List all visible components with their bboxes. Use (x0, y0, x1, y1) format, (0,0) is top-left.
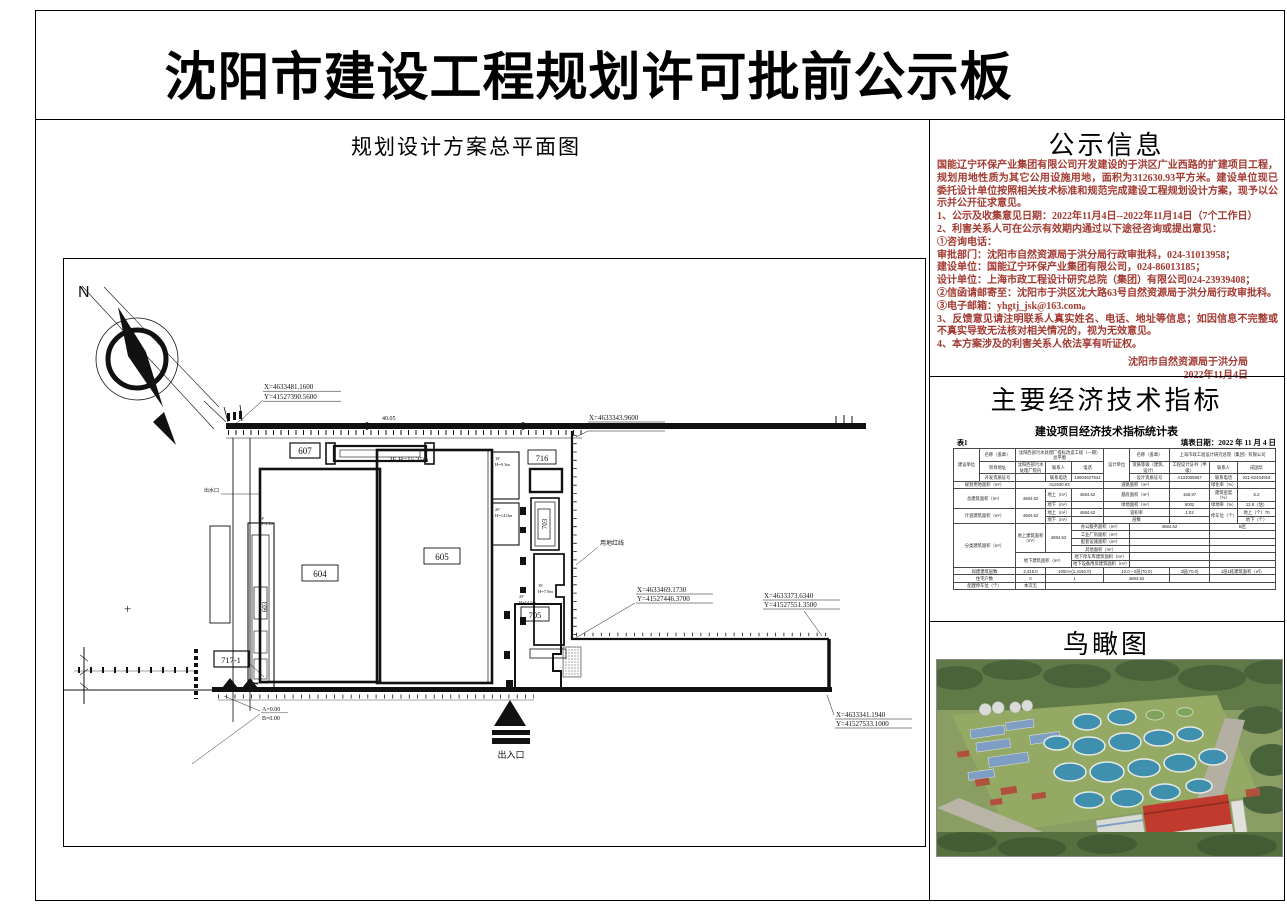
indicator-cell (1210, 531, 1276, 538)
notice-paragraph: 国能辽宁环保产业集团有限公司开发建设的于洪区广业西路的扩建项目工程，规划用地性质… (937, 160, 1278, 211)
indicator-cell: 道路面积（m²） (1104, 481, 1170, 488)
north-road (226, 415, 866, 438)
indicator-cell: 设计单位 (1104, 449, 1130, 482)
notice-paragraph: 2、利害关系人可在公示有效期内通过以下途径咨询或提出意见： (937, 224, 1278, 237)
indicator-cell: 地上建筑面积（m²） (1016, 523, 1046, 552)
entrance-label: 出入口 (497, 749, 524, 760)
svg-text:H=4.5m: H=4.5m (260, 521, 274, 526)
indicator-cell: 配建停车位（个） (954, 582, 1016, 589)
indicator-cell: 工程设计证书（甲级） (1170, 461, 1210, 474)
svg-text:Y=41527551.3500: Y=41527551.3500 (764, 601, 817, 609)
building-label-717-1: 717-1 (221, 655, 241, 665)
indicator-cell: 配套设施面积（m²） (1072, 538, 1130, 545)
site-plan-drawing: N X=4633481.1600 Y=41527390.5600 (64, 259, 925, 846)
indicator-cell: 拟建建筑层数 (954, 568, 1016, 575)
indicator-cell: 联系电话 (1210, 474, 1238, 481)
notice-board-sheet: 沈阳市建设工程规划许可批前公示板 规划设计方案总平面图 N (35, 10, 1285, 901)
indicator-cell (1210, 560, 1276, 567)
svg-text:H=9.3m: H=9.3m (495, 462, 510, 467)
section-divider-1 (929, 376, 1284, 377)
indicator-cell: 100m×(1,4150.0) (1046, 568, 1104, 575)
indicator-cell: 停车位（个） (1210, 509, 1238, 524)
svg-text:A=0.00: A=0.00 (262, 707, 280, 713)
entrance-marker: 出入口 (492, 700, 530, 760)
west-road (204, 401, 258, 722)
svg-text:出水口: 出水口 (204, 487, 219, 494)
indicator-cell: 0 (1016, 575, 1046, 582)
indicator-cell (1170, 481, 1210, 488)
notice-body: 国能辽宁环保产业集团有限公司开发建设的于洪区广业西路的扩建项目工程，规划用地性质… (937, 160, 1278, 383)
aerial-rendering (936, 659, 1283, 857)
indicator-cell: 312630.93 (1016, 481, 1104, 488)
east-boundary (572, 431, 829, 692)
notice-paragraph: 建设单位：国能辽宁环保产业集团有限公司，024-86013185； (937, 262, 1278, 275)
indicators-heading: 主要经济技术指标 (929, 380, 1284, 417)
site-plan-panel: N X=4633481.1600 Y=41527390.5600 (63, 258, 926, 847)
notice-paragraph: 3、反馈意见请注明联系人真实姓名、电话、地址等信息；如因信息不完整或不真实导致无… (937, 314, 1278, 340)
indicator-cell: B区 (1210, 523, 1276, 530)
indicator-cell: 联系人 (1210, 461, 1238, 474)
building-703: 703 1F H=7.9m (520, 498, 566, 658)
indicator-cell: 沈阳西部污水处理厂提标改造工程（一期）总平图 (1016, 449, 1104, 462)
svg-text:B=0.00: B=0.00 (262, 716, 280, 722)
indicator-cell: 156.97 (1170, 489, 1210, 502)
indicator-cell: 名称（盖章） (980, 449, 1016, 462)
svg-text:Y=41527390.5600: Y=41527390.5600 (264, 393, 317, 401)
indicator-cell: 层数 (1104, 516, 1170, 523)
building-705: 2F H=14.6m 705 (504, 594, 581, 690)
building-label-605: 605 (435, 552, 449, 562)
svg-text:Y=41527446.3700: Y=41527446.3700 (637, 595, 690, 603)
indicator-cell: 13604927544 (1072, 474, 1104, 481)
building-605: 605 3F H=15.35m (377, 450, 492, 683)
notice-paragraph: ①咨询电话： (937, 237, 1278, 250)
building-label-703: 703 (541, 518, 549, 529)
building-label-705: 705 (529, 610, 542, 620)
indicator-cell: 沈阳西部污水处理厂院内 (1016, 461, 1046, 474)
indicator-cell: 4684.62 (1046, 523, 1072, 552)
north-compass: N (78, 284, 219, 445)
svg-text:Y=41527526.5200: Y=41527526.5200 (589, 423, 642, 431)
indicator-cell (1210, 553, 1276, 560)
indicator-cell (1170, 575, 1210, 582)
indicator-cell: 项目地址 (980, 461, 1016, 474)
svg-text:X=4633469.1730: X=4633469.1730 (637, 586, 687, 594)
svg-text:2F: 2F (519, 594, 524, 599)
indicator-cell (1130, 538, 1210, 545)
svg-text:1F: 1F (495, 456, 500, 461)
svg-text:X=4633343.9600: X=4633343.9600 (589, 414, 639, 422)
title-divider (36, 119, 1284, 120)
building-604: 604 (260, 469, 380, 682)
indicator-table: 建设单位名称（盖章）沈阳西部污水处理厂提标改造工程（一期）总平图设计单位名称（盖… (953, 448, 1276, 590)
indicator-cell (1130, 553, 1210, 560)
coord-label-3: X=4633469.1730 Y=41527446.3700 (574, 586, 713, 639)
notice-signature: 沈阳市自然资源局于洪分局2022年11月4日 (937, 357, 1278, 383)
plan-section-title: 规划设计方案总平面图 (336, 131, 596, 161)
indicator-cell: 4684.62 (1072, 509, 1104, 516)
indicator-cell: 地上（个）70 (1238, 509, 1276, 516)
indicator-cell: 建筑密度（%） (1210, 489, 1238, 502)
indicator-cell: 4684.62 (1016, 509, 1046, 524)
outfall-note: 出水口 (204, 487, 260, 494)
indicator-cell (1210, 575, 1276, 582)
north-label: N (78, 284, 90, 301)
indicator-cell: 联系电话 (1046, 474, 1072, 481)
indicator-cell: 绿地率（%） (1210, 501, 1238, 508)
building-label-607: 607 (298, 446, 312, 456)
indicator-cell: 本次无 (1016, 582, 1046, 589)
indicator-cell: 名称（盖章） (1130, 449, 1170, 462)
indicator-cell: 地上（m²） (1046, 489, 1072, 502)
indicator-cell: 开发资质证号 (980, 474, 1016, 481)
building-label-603: 603 (261, 601, 269, 612)
indicator-cell: 成国华 (1238, 461, 1276, 474)
indicator-cell: 10.0－2层(70.0) (1104, 568, 1170, 575)
notice-heading: 公示信息 (929, 125, 1284, 162)
svg-text:1F: 1F (538, 583, 543, 588)
svg-text:X=4633341.1940: X=4633341.1940 (836, 711, 886, 719)
indicator-cell (1016, 474, 1046, 481)
indicator-cell: 021-62404918 (1238, 474, 1276, 481)
indicator-cell: 上海市政工程设计研究总院（集团）有限公司 (1170, 449, 1276, 462)
svg-text:X=4633373.6340: X=4633373.6340 (764, 592, 814, 600)
height-note-605: 3F H=15.35m (389, 456, 429, 464)
indicator-cell: 4684.62 (1016, 489, 1046, 509)
notice-paragraph: ③电子邮箱：yhgtj_jsk@163.com。 (937, 301, 1278, 314)
indicator-table-date: 填表日期：2022 年 11 月 4 日 (1091, 437, 1276, 448)
indicator-cell: 12.8（估） (1238, 501, 1276, 508)
building-label-716: 716 (536, 453, 549, 463)
indicator-cell: 电话 (1072, 461, 1104, 474)
coord-label-1: X=4633481.1600 Y=41527390.5600 (234, 383, 341, 425)
svg-text:用地红线: 用地红线 (600, 539, 624, 547)
indicator-cell (1130, 531, 1210, 538)
notice-paragraph: 4、本方案涉及的利害关系人依法享有听证权。 (937, 339, 1278, 352)
indicator-cell (1072, 516, 1104, 523)
indicator-cell: 联系人 (1046, 461, 1072, 474)
indicator-cell: 工业厂房面积（m²） (1072, 531, 1130, 538)
indicator-cell (1238, 481, 1276, 488)
indicator-cell (1046, 582, 1276, 589)
indicator-cell: 地下建筑面积（m²） (1016, 553, 1072, 568)
indicator-cell: 4684.62 (1072, 489, 1104, 502)
svg-text:H=14.0m: H=14.0m (495, 513, 513, 518)
page-title: 沈阳市建设工程规划许可批前公示板 (36, 35, 1141, 110)
svg-text:Y=41527533.1000: Y=41527533.1000 (836, 720, 889, 728)
indicator-cell: A131005957 (1170, 474, 1210, 481)
indicator-cell: 3层(70.0) (1170, 568, 1210, 575)
indicator-cell (1170, 516, 1210, 523)
indicator-cell (1210, 538, 1276, 545)
indicator-cell: 6002 (1170, 501, 1210, 508)
building-label-604: 604 (313, 569, 327, 579)
indicator-cell: 建设单位 (954, 449, 980, 482)
indicator-cell (1072, 501, 1104, 508)
indicator-table-number: 表1 (957, 438, 968, 448)
indicator-cell: 4684.62 (1130, 523, 1210, 530)
indicator-cell: 分类建筑面积（m²） (954, 523, 1016, 567)
indicator-cell: 地下（m²） (1046, 516, 1072, 523)
indicator-cell: 地下（个） (1238, 516, 1276, 523)
notice-paragraph: 审批部门：沈阳市自然资源局于洪分局行政审批科，024-31013958； (937, 250, 1278, 263)
indicator-cell: 地下停车库建筑面积（m²） (1072, 553, 1130, 560)
indicator-cell: 其他面积（m²） (1072, 546, 1130, 553)
indicator-cell: 地下（m²） (1046, 501, 1072, 508)
notice-paragraph: 设计单位：上海市政工程设计研究总院（集团）有限公司024-23939408； (937, 275, 1278, 288)
west-structures (74, 526, 230, 704)
level-note: A=0.00 B=0.00 (261, 707, 288, 722)
indicator-cell: 基底面积（m²） (1104, 489, 1170, 502)
indicator-cell: 1层1栋建筑面积（㎡） (1210, 568, 1276, 575)
column-divider (929, 119, 930, 900)
survey-cross-mark: + (124, 601, 131, 616)
indicator-cell: 规划用地面积（m²） (954, 481, 1016, 488)
coord-label-5: X=4633341.1940 Y=41527533.1000 (827, 695, 912, 728)
indicator-cell: 计容建筑面积（m²） (954, 509, 1016, 524)
indicator-cell: 地下设备用房建筑面积（m²） (1072, 560, 1130, 567)
svg-text:40.05: 40.05 (382, 416, 396, 422)
indicator-cell: 资质等级（建筑、设计） (1130, 461, 1170, 474)
indicator-cell: 住宅户数 (954, 575, 1016, 582)
indicator-cell: 4684.62 (1104, 575, 1170, 582)
indicator-cell: 2,415.0 (1016, 568, 1046, 575)
south-boundary (64, 687, 832, 764)
notice-paragraph: ②信函请邮寄至：沈阳市于洪区沈大路63号自然资源局于洪分局行政审批科。 (937, 288, 1278, 301)
indicator-cell: 5.2 (1238, 489, 1276, 502)
indicator-cell: 地上（m²） (1046, 509, 1072, 516)
indicator-cell (1130, 546, 1210, 553)
section-divider-2 (929, 621, 1284, 622)
building-716: 716 (528, 450, 562, 492)
indicator-cell (1210, 546, 1276, 553)
svg-text:2F: 2F (495, 507, 500, 512)
indicator-cell: 设计资质证号 (1130, 474, 1170, 481)
indicator-cell: 总建筑面积（m²） (954, 489, 1016, 509)
svg-text:H=7.9m: H=7.9m (538, 589, 553, 594)
indicator-cell: 容积率 (1104, 509, 1170, 516)
indicator-cell: 绿地面积（m²） (1104, 501, 1170, 508)
building-717-1: 717-1 (214, 651, 264, 688)
svg-text:X=4633481.1600: X=4633481.1600 (264, 383, 314, 391)
indicator-cell: 绿化率（%） (1210, 481, 1238, 488)
indicator-cell: 1.02 (1170, 509, 1210, 516)
indicator-cell (1130, 560, 1210, 567)
red-line-note: 用地红线 (576, 539, 624, 565)
indicator-cell: 1 (1046, 575, 1104, 582)
indicator-cell: 办公服务面积（m²） (1072, 523, 1130, 530)
notice-paragraph: 1、公示及收集意见日期：2022年11月4日--2022年11月14日（7个工作… (937, 211, 1278, 224)
coord-label-4: X=4633373.6340 Y=41527551.3500 (763, 592, 840, 636)
aerial-heading: 鸟瞰图 (929, 624, 1284, 661)
